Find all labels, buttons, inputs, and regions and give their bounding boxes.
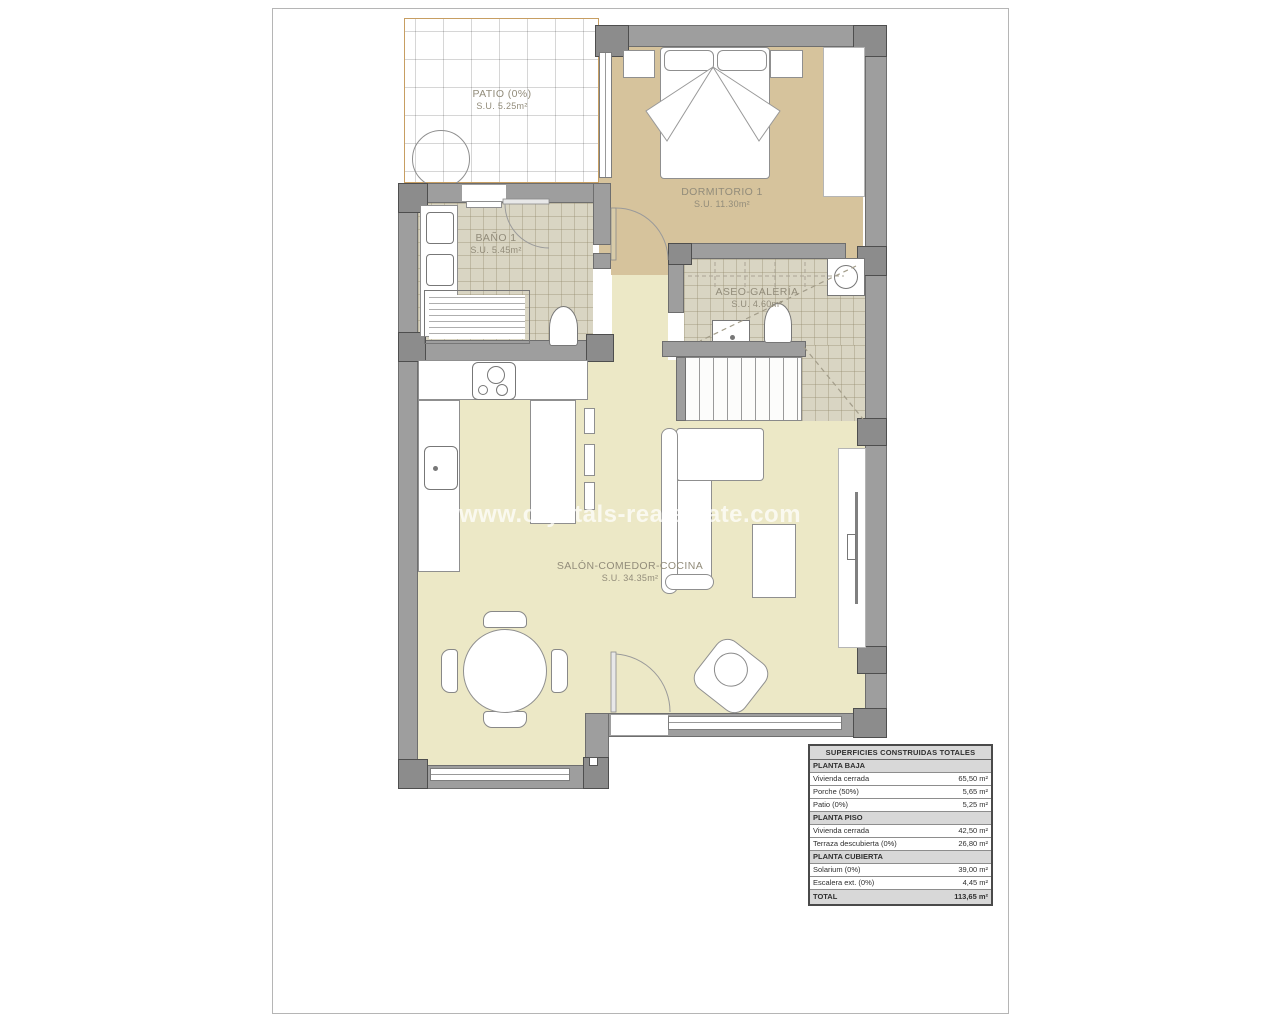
areas-table-section-header: PLANTA PISO [810, 812, 991, 825]
areas-table-row: Vivienda cerrada42,50 m² [810, 825, 991, 838]
room-name: SALÓN-COMEDOR-COCINA [530, 560, 730, 573]
dining-chair [483, 611, 527, 628]
areas-table-row: Patio (0%)5,25 m² [810, 799, 991, 812]
areas-table-title: SUPERFICIES CONSTRUIDAS TOTALES [810, 746, 991, 760]
pillar [668, 243, 692, 265]
areas-row-value: 65,50 m² [958, 773, 991, 785]
window-living-south [668, 716, 842, 730]
stove-icon [472, 362, 516, 400]
dining-chair [441, 649, 458, 693]
switch-box-icon [589, 757, 598, 766]
wall-left [398, 183, 418, 789]
room-area: S.U. 34.35m² [530, 573, 730, 584]
armchair-cushion-icon [707, 646, 755, 694]
areas-table: SUPERFICIES CONSTRUIDAS TOTALES PLANTA B… [808, 744, 993, 906]
areas-row-label: Vivienda cerrada [810, 825, 869, 837]
watermark: www.crystals-realestate.com [410, 501, 850, 529]
burner-icon [496, 384, 508, 396]
areas-table-row: Vivienda cerrada65,50 m² [810, 773, 991, 786]
room-area: S.U. 4.60m² [657, 299, 857, 310]
areas-row-label: Patio (0%) [810, 799, 848, 811]
total-label: TOTAL [813, 890, 837, 904]
areas-row-label: Vivienda cerrada [810, 773, 869, 785]
dining-chair [551, 649, 568, 693]
kitchen-shelf [584, 444, 595, 476]
areas-row-value: 4,45 m² [963, 877, 991, 889]
burner-icon [478, 385, 488, 395]
room-area: S.U. 5.25m² [402, 101, 602, 112]
coffee-table [752, 524, 796, 598]
areas-table-section-header: PLANTA CUBIERTA [810, 851, 991, 864]
areas-row-value: 26,80 m² [958, 838, 991, 850]
wall-right [865, 47, 887, 715]
wall-aseo-top [668, 243, 846, 259]
areas-row-label: Terraza descubierta (0%) [810, 838, 897, 850]
areas-row-value: 5,65 m² [963, 786, 991, 798]
kitchen-shelf [584, 408, 595, 434]
toilet-icon [549, 306, 578, 346]
total-value: 113,65 m² [954, 890, 988, 904]
areas-table-row: Escalera ext. (0%)4,45 m² [810, 877, 991, 890]
bath-sink-icon [426, 254, 454, 286]
aseo-sink-icon [712, 320, 750, 342]
wall-top [595, 25, 887, 47]
pillar [398, 759, 428, 789]
areas-row-label: Solarium (0%) [810, 864, 861, 876]
pillow [664, 50, 714, 71]
staircase [684, 357, 802, 421]
dining-table [463, 629, 547, 713]
entry-door-opening [611, 715, 668, 735]
floorplan-page: PATIO (0%) S.U. 5.25m² DORMITORIO 1 S.U.… [0, 0, 1280, 1024]
window-dining-south [430, 768, 570, 781]
burner-icon [487, 366, 505, 384]
sofa-chaise [676, 428, 764, 481]
areas-row-value: 42,50 m² [958, 825, 991, 837]
room-label-bano: BAÑO 1 S.U. 5.45m² [396, 232, 596, 255]
room-label-dormitorio: DORMITORIO 1 S.U. 11.30m² [622, 186, 822, 209]
nightstand [623, 50, 655, 78]
understair-floor [802, 345, 865, 421]
room-name: PATIO (0%) [402, 88, 602, 101]
wall-bath-bedroom-stub [593, 253, 611, 269]
tap-icon [433, 466, 438, 471]
wardrobe [823, 47, 865, 197]
window-bedroom-patio [599, 52, 612, 178]
areas-table-row: Terraza descubierta (0%)26,80 m² [810, 838, 991, 851]
patio-step [466, 201, 502, 208]
wall-patio-bottom [418, 183, 603, 203]
kitchen-sink-icon [424, 446, 458, 490]
room-label-aseo: ASEO-GALERÍA S.U. 4.60m² [657, 286, 857, 309]
room-area: S.U. 11.30m² [622, 199, 822, 210]
room-label-patio: PATIO (0%) S.U. 5.25m² [402, 88, 602, 111]
pillar [857, 418, 887, 446]
room-name: BAÑO 1 [396, 232, 596, 245]
room-area: S.U. 5.45m² [396, 245, 596, 256]
pillar [853, 708, 887, 738]
areas-row-value: 5,25 m² [963, 799, 991, 811]
dining-chair [483, 711, 527, 728]
room-name: ASEO-GALERÍA [657, 286, 857, 299]
patio-door-opening [462, 185, 506, 201]
areas-table-body: PLANTA BAJAVivienda cerrada65,50 m²Porch… [810, 760, 991, 890]
wall-aseo-bottom [662, 341, 806, 357]
corridor-floor [611, 203, 668, 275]
pillow [717, 50, 767, 71]
pillar [857, 646, 887, 674]
wall-stairs-left [676, 357, 686, 421]
room-label-salon: SALÓN-COMEDOR-COCINA S.U. 34.35m² [530, 560, 730, 583]
shower-icon [424, 290, 530, 344]
areas-table-section-header: PLANTA BAJA [810, 760, 991, 773]
room-name: DORMITORIO 1 [622, 186, 822, 199]
tap-icon [730, 335, 735, 340]
areas-row-value: 39,00 m² [958, 864, 991, 876]
tv-box [847, 534, 856, 560]
areas-table-row: Solarium (0%)39,00 m² [810, 864, 991, 877]
patio-circle-icon [412, 130, 470, 188]
areas-table-row: Porche (50%)5,65 m² [810, 786, 991, 799]
areas-row-label: Escalera ext. (0%) [810, 877, 874, 889]
areas-table-total-row: TOTAL 113,65 m² [810, 890, 991, 904]
pillar [586, 334, 614, 362]
areas-row-label: Porche (50%) [810, 786, 859, 798]
nightstand [770, 50, 803, 78]
